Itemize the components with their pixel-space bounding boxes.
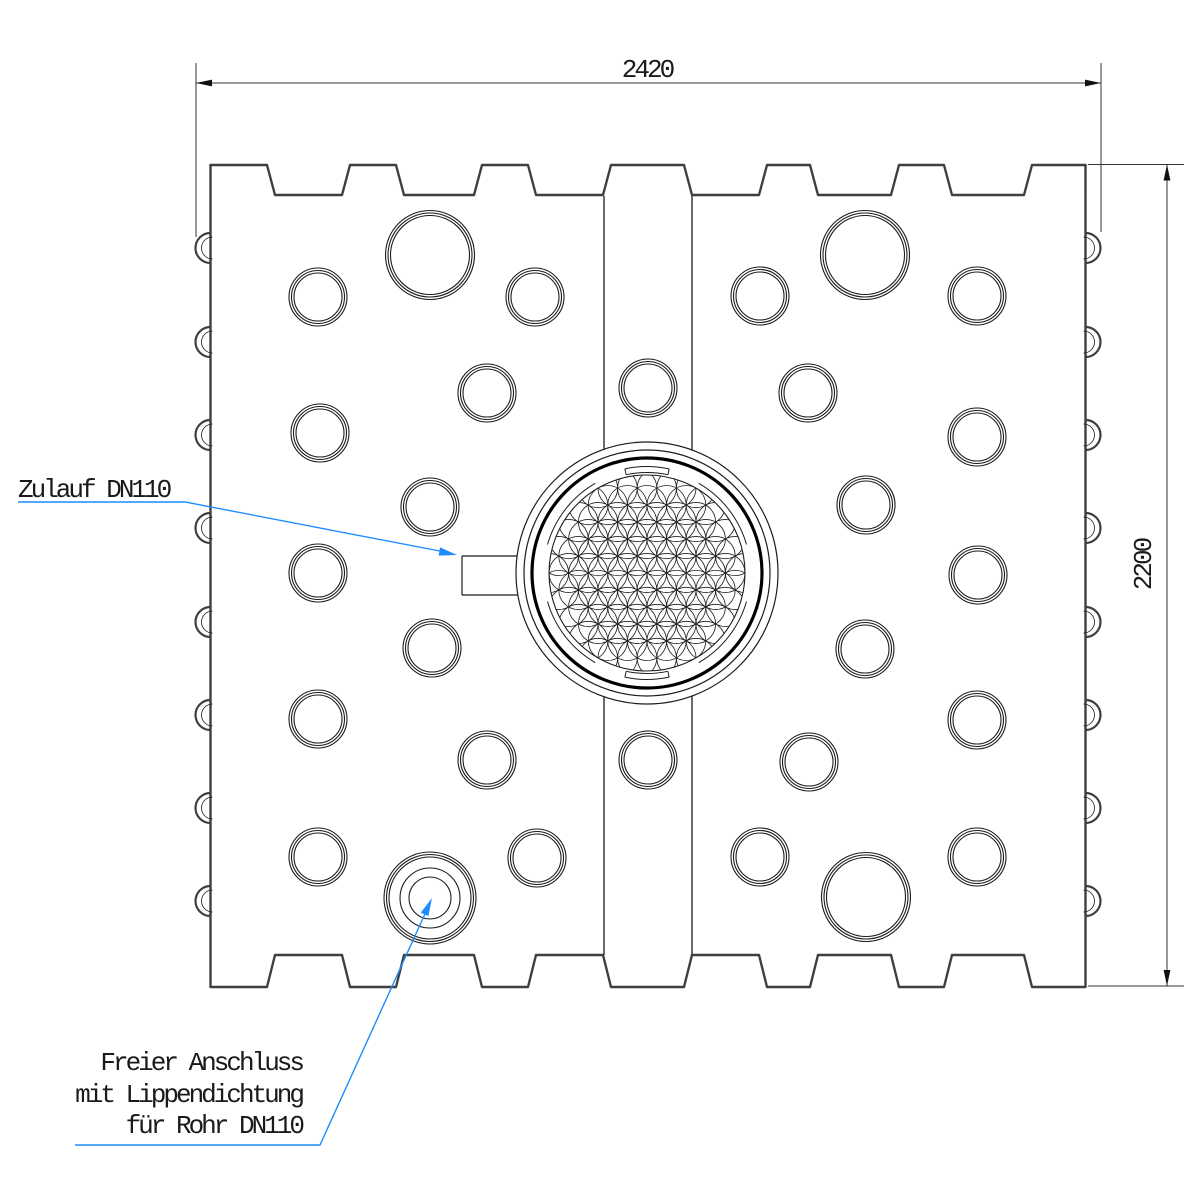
small-hole	[954, 551, 1002, 599]
small-hole	[508, 829, 566, 887]
small-hole	[511, 273, 559, 321]
inlet-leader-line	[18, 502, 450, 553]
small-hole	[406, 622, 459, 675]
dimension-height-value: 2200	[1129, 538, 1159, 590]
small-hole	[731, 267, 789, 325]
connection-label-line-1: Freier Anschluss	[100, 1048, 303, 1078]
small-hole	[294, 407, 347, 460]
small-hole	[842, 481, 890, 529]
connection-leader-arrowhead	[421, 898, 432, 916]
small-hole	[458, 731, 516, 789]
small-hole	[953, 833, 1001, 881]
small-hole	[408, 624, 456, 672]
dim-width-arrow-left	[196, 80, 212, 87]
small-hole	[461, 367, 514, 420]
small-hole	[513, 834, 561, 882]
small-hole	[779, 364, 837, 422]
channel-hole	[622, 734, 675, 787]
small-hole	[783, 736, 836, 789]
small-hole	[511, 832, 564, 885]
small-hole	[734, 270, 787, 323]
large-hole	[823, 213, 907, 297]
small-hole	[840, 479, 893, 532]
tank-top-view-drawing: 2420 2200 Zulauf DN110 Freier Anschluss …	[0, 0, 1200, 1200]
small-hole	[836, 620, 894, 678]
small-hole	[292, 831, 345, 884]
technical-drawing-page: 2420 2200 Zulauf DN110 Freier Anschluss …	[0, 0, 1200, 1200]
channel-hole	[619, 359, 677, 417]
large-hole	[826, 216, 905, 295]
drawing-geometry	[18, 63, 1184, 1145]
small-hole	[401, 478, 459, 536]
small-hole	[294, 695, 342, 743]
connection-label-line-2: mit Lippendichtung	[75, 1080, 303, 1110]
small-hole	[948, 691, 1006, 749]
small-hole	[780, 733, 838, 791]
small-hole	[731, 828, 789, 886]
small-hole	[289, 544, 347, 602]
channel-hole	[619, 731, 677, 789]
small-hole	[506, 268, 564, 326]
small-hole	[952, 549, 1005, 602]
small-hole	[736, 833, 784, 881]
small-hole	[289, 268, 347, 326]
small-hole	[949, 546, 1007, 604]
small-hole	[953, 413, 1001, 461]
small-hole	[294, 273, 342, 321]
connection-port-outer	[384, 852, 476, 944]
connection-port-inner	[409, 877, 451, 919]
small-hole	[782, 367, 835, 420]
small-hole	[404, 481, 457, 534]
small-hole	[406, 483, 454, 531]
dim-height-arrow-top	[1164, 165, 1171, 181]
large-hole	[386, 211, 475, 300]
small-hole	[294, 549, 342, 597]
inlet-label: Zulauf DN110	[18, 475, 171, 505]
small-hole	[951, 831, 1004, 884]
inlet-leader-arrowhead	[439, 547, 457, 555]
small-hole	[463, 736, 511, 784]
small-hole	[292, 271, 345, 324]
small-hole	[458, 364, 516, 422]
small-hole	[292, 693, 345, 746]
small-hole	[948, 267, 1006, 325]
small-hole	[292, 547, 345, 600]
dimension-width-value: 2420	[622, 55, 674, 85]
small-hole	[734, 831, 787, 884]
connection-port-outer	[389, 857, 471, 939]
large-hole	[822, 853, 911, 942]
large-hole	[388, 213, 472, 297]
small-hole	[951, 270, 1004, 323]
large-hole	[391, 216, 470, 295]
large-hole	[821, 211, 910, 300]
small-hole	[463, 369, 511, 417]
dim-width-arrow-right	[1085, 80, 1101, 87]
small-hole	[953, 696, 1001, 744]
channel-hole	[624, 736, 672, 784]
small-hole	[784, 369, 832, 417]
small-hole	[953, 272, 1001, 320]
channel-hole	[622, 362, 675, 415]
small-hole	[837, 476, 895, 534]
dim-height-arrow-bottom	[1164, 970, 1171, 986]
small-hole	[403, 619, 461, 677]
small-hole	[948, 408, 1006, 466]
large-hole	[827, 858, 906, 937]
small-hole	[841, 625, 889, 673]
small-hole	[785, 738, 833, 786]
small-hole	[294, 833, 342, 881]
small-hole	[509, 271, 562, 324]
small-hole	[839, 623, 892, 676]
small-hole	[951, 411, 1004, 464]
small-hole	[951, 694, 1004, 747]
small-hole	[289, 690, 347, 748]
small-hole	[296, 409, 344, 457]
small-hole	[736, 272, 784, 320]
small-hole	[289, 828, 347, 886]
small-hole	[461, 734, 514, 787]
large-hole	[824, 855, 908, 939]
connection-label-line-3: für Rohr DN110	[126, 1111, 304, 1141]
small-hole	[291, 404, 349, 462]
small-hole	[948, 828, 1006, 886]
channel-hole	[624, 364, 672, 412]
